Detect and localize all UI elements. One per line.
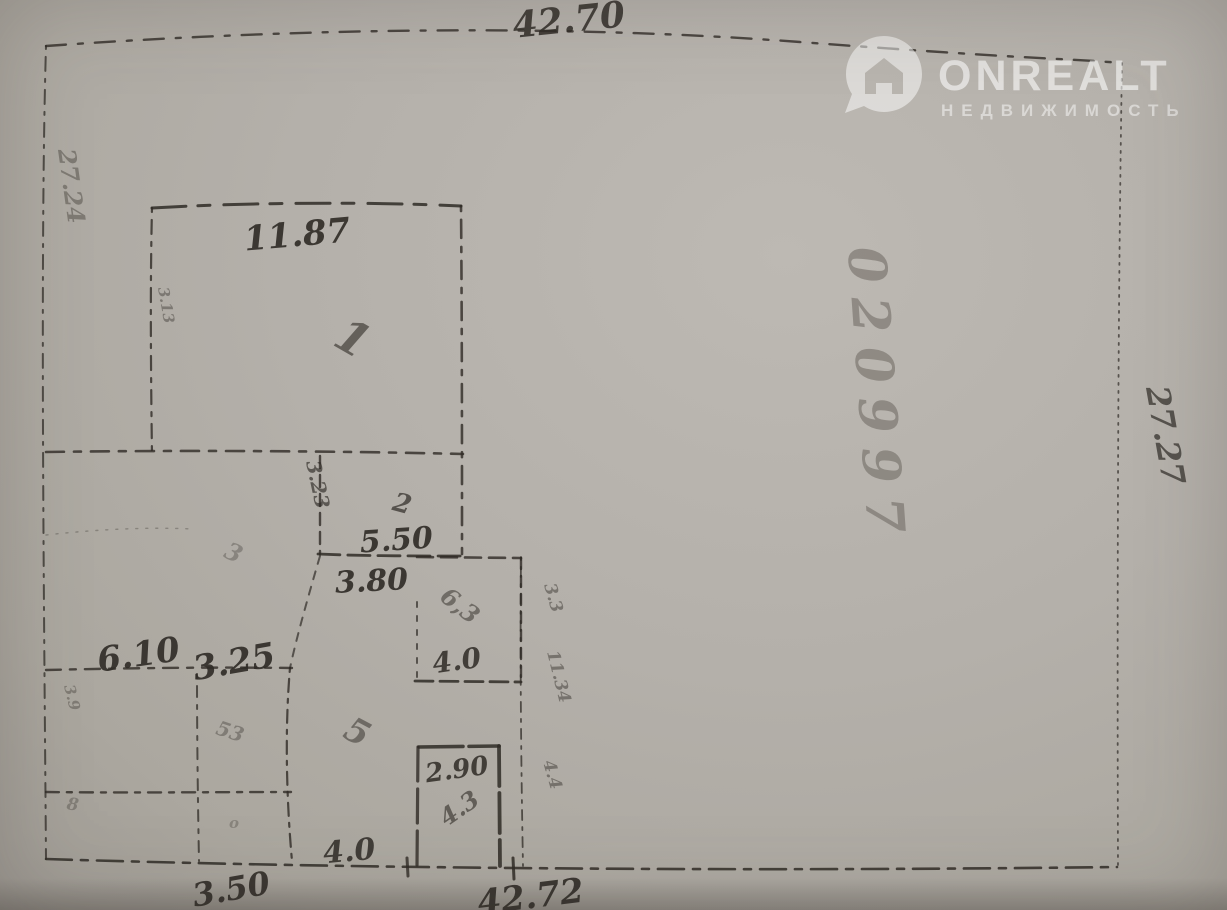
note-3-faint: 3 [220,536,247,569]
wall-diagonal [290,556,320,668]
dim-3-50: 3.50 [189,864,272,910]
dim-3-23-vertical: 3.23 [301,458,335,511]
wall-y453 [46,451,463,454]
room1-top-wall [152,203,461,208]
dim-6-10: 6.10 [95,629,183,680]
room2-number: 2 [388,487,414,521]
room1-number: 1 [326,307,381,370]
room3-bottom-wall [415,681,521,682]
note-4-4-vertical: 4.4 [538,758,565,792]
note-o-faint: o [229,814,239,832]
plan-drawing-layer: 42.7011.8713.2325.503.806.103.256,34.03.… [43,0,1193,910]
onrealt-pin-icon [845,36,922,113]
wc-left-wall [417,747,418,866]
wc-note-4-3: 4.3 [434,784,485,832]
wc-top-wall [419,746,499,747]
boundary-bottom [46,859,1117,869]
note-11-34-vertical: 11.34 [542,648,574,704]
note-8-faint: 8 [64,794,80,816]
stamp-020997: 020997 [835,245,917,550]
onrealt-subtitle-text: НЕДВИЖИМОСТЬ [941,101,1187,120]
room1-left-wall [151,208,152,456]
boundary-right [1118,63,1122,867]
room3-top-wall [417,557,521,558]
faint-pencil-line [46,528,192,535]
dim-left-27-24: 27.24 [52,146,91,225]
note-53-faint: 53 [213,716,247,747]
dim-4-0-bottom: 4.0 [322,832,377,871]
dim-2-90: 2.90 [422,751,490,790]
note-3-9-faint: 3.9 [60,683,84,713]
wc-right-wall [499,746,500,866]
bottom-tick-1 [407,858,408,876]
room1-right-wall [461,206,462,554]
dim-3-25: 3.25 [190,635,279,689]
scanned-floor-plan-page: 42.7011.8713.2325.503.806.103.256,34.03.… [0,0,1227,910]
dim-top-42-70: 42.70 [510,0,627,47]
note-3-3-vertical: 3.3 [539,581,566,615]
wall-x290 [287,668,292,861]
onrealt-watermark: ONREALT НЕДВИЖИМОСТЬ [845,36,1187,120]
onrealt-brand-text: ONREALT [938,52,1171,100]
dim-right-27-27: 27.27 [1138,382,1193,488]
dim-bottom-42-72: 42.72 [475,871,586,910]
dim-room1-11-87: 11.87 [242,210,352,259]
wall-x197 [197,674,199,861]
floor-plan-svg: 42.7011.8713.2325.503.806.103.256,34.03.… [0,0,1227,910]
dim-3-80: 3.80 [334,562,409,601]
bottom-tick-2 [513,858,514,879]
dim-4-0-room3: 4.0 [430,641,483,681]
room5-number: 5 [337,709,377,755]
note-3-13-vertical: 3.13 [154,286,178,325]
room3-note: 6,3 [435,581,486,630]
dim-5-50: 5.50 [359,521,434,561]
